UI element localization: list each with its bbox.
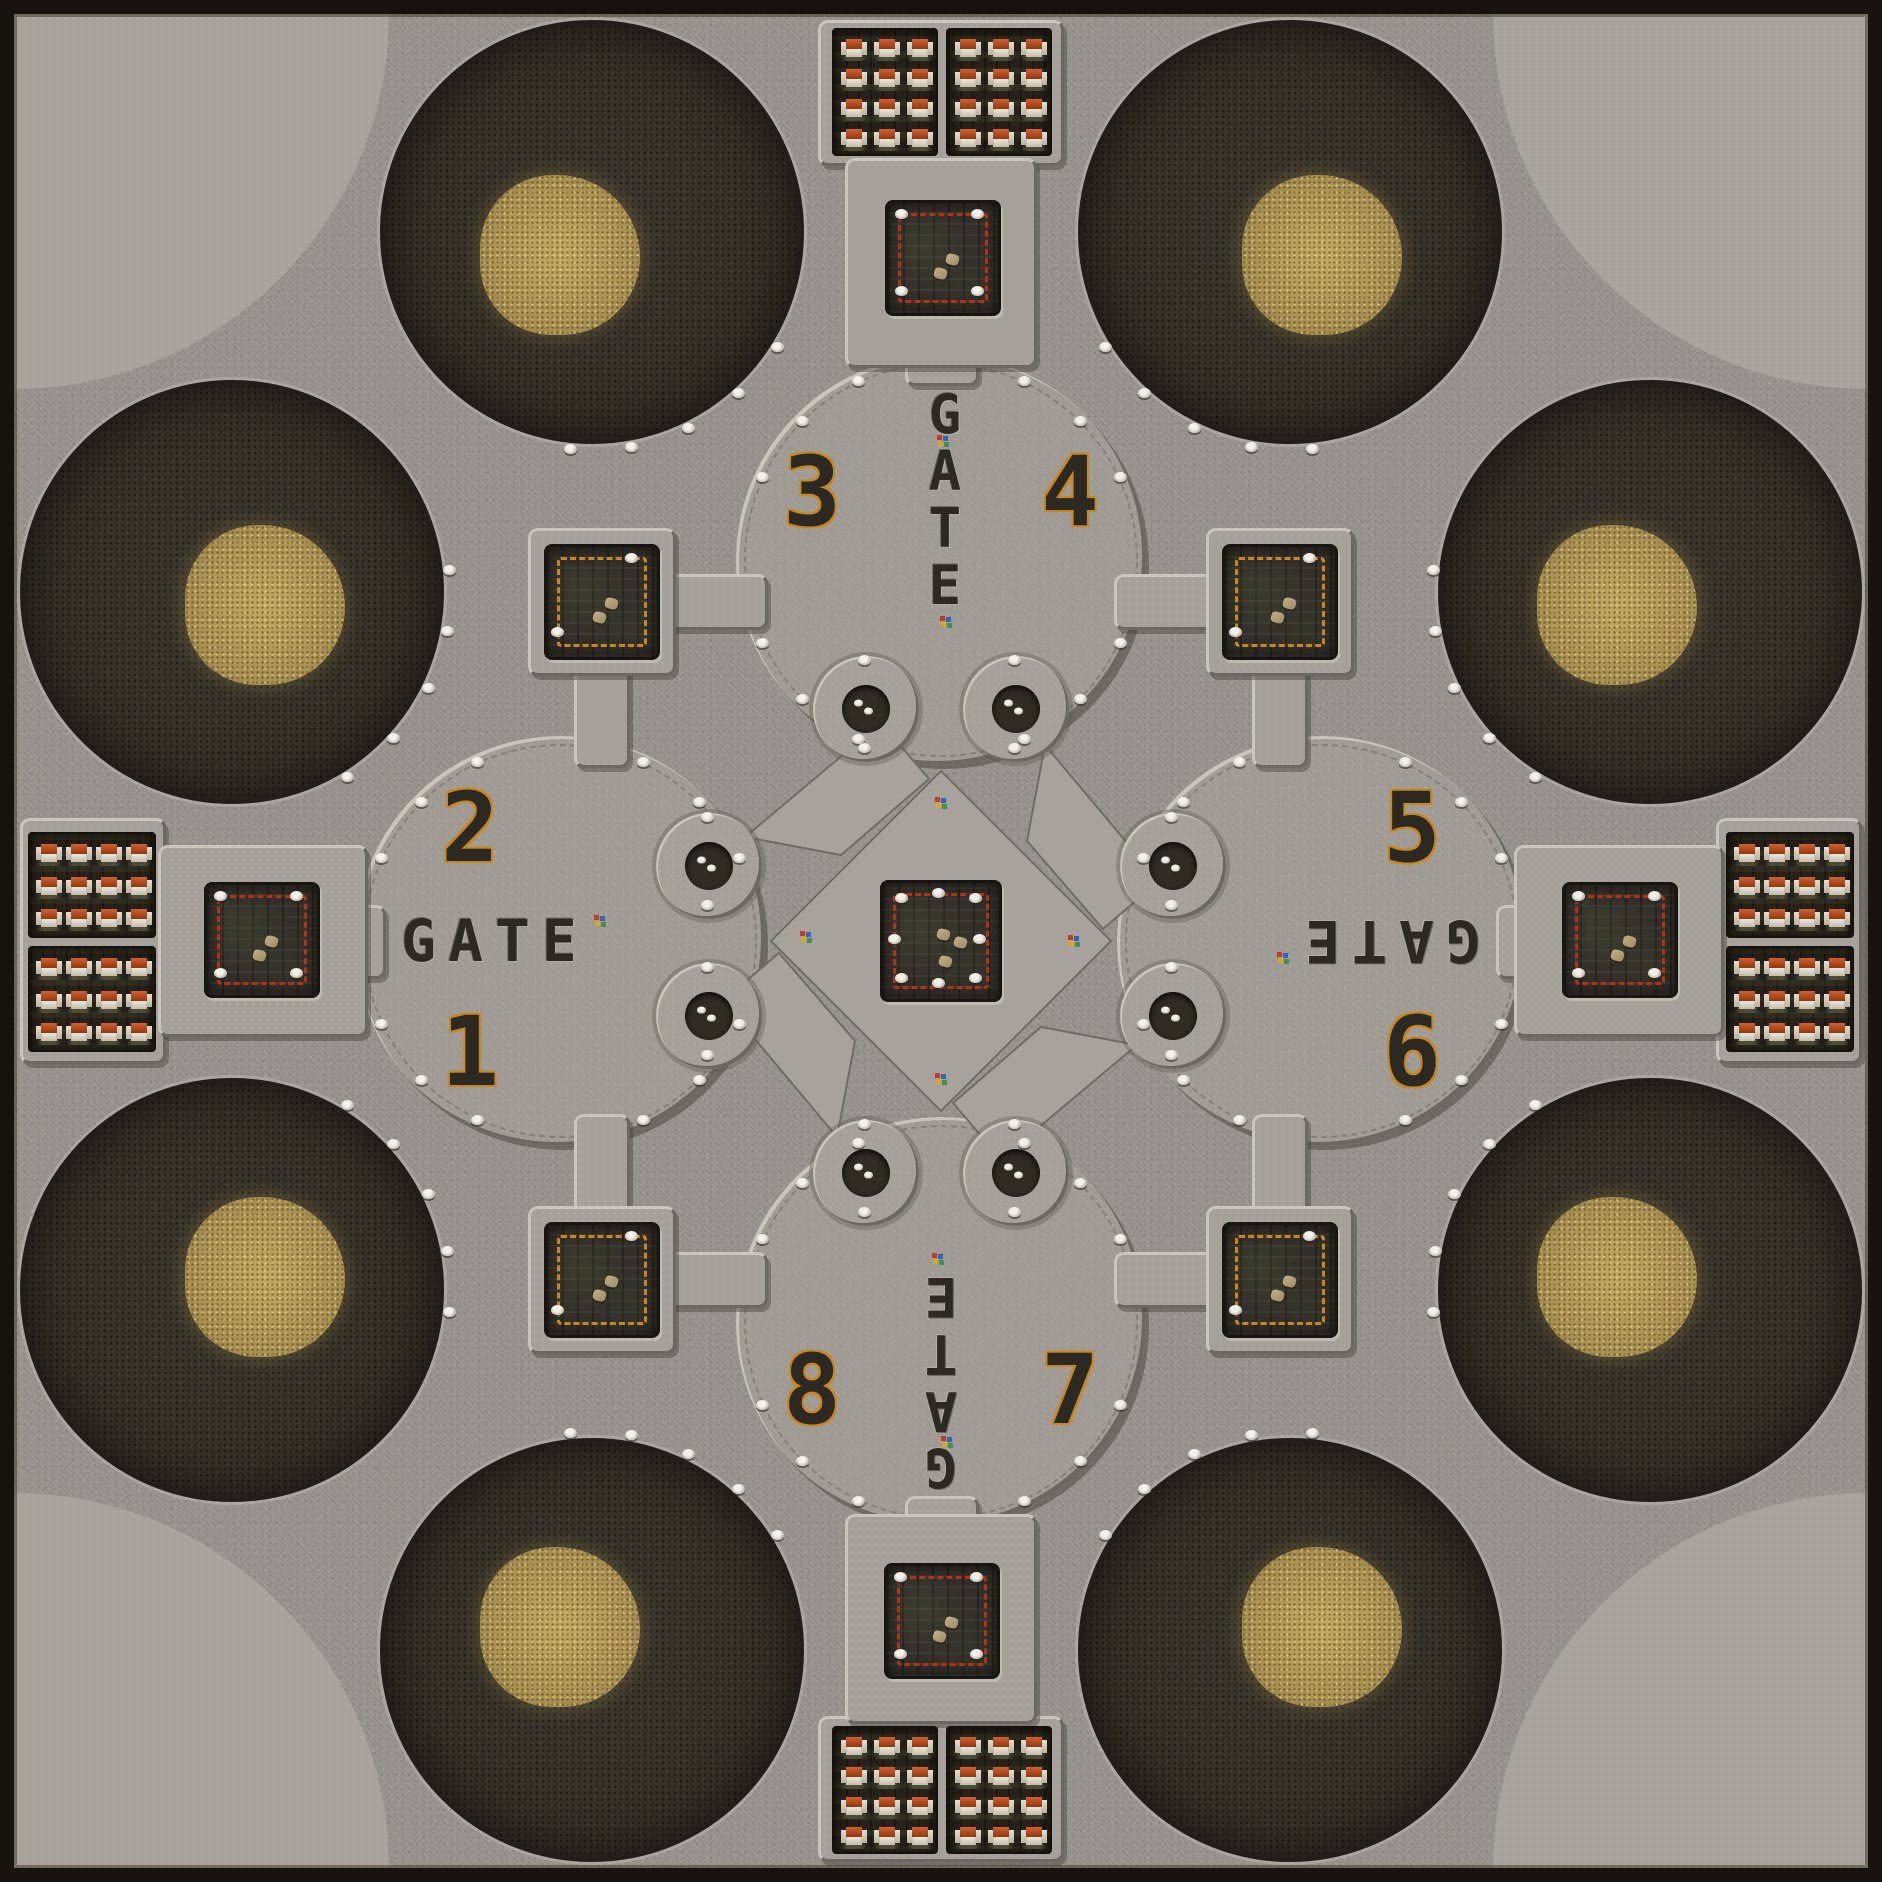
skull-icon [1008,743,1021,753]
gold-dashed-border [557,557,647,647]
castle-icon[interactable] [126,908,152,931]
gate-letter: T [929,500,962,557]
castle-icon[interactable] [1794,990,1820,1013]
skull-icon [1161,857,1170,864]
gate-letter: E [925,1268,958,1325]
castle-pen [832,28,938,156]
castle-icon[interactable] [96,843,122,866]
castle-icon[interactable] [874,128,900,151]
skull-icon [443,1307,456,1317]
skull-icon [1483,1139,1496,1149]
skull-icon [852,1496,865,1506]
castle-icon[interactable] [841,1796,867,1819]
tower-hole [992,685,1040,733]
skull-icon [564,444,577,454]
castle-icon[interactable] [841,98,867,121]
skull-icon [441,626,454,636]
skull-icon [1004,1164,1013,1171]
square-center[interactable] [880,880,1002,1002]
skull-icon [341,1100,354,1110]
skull-icon [852,376,865,386]
skull-icon [1165,962,1178,972]
castle-icon[interactable] [1764,1022,1790,1045]
castle-icon[interactable] [874,1826,900,1849]
skull-icon [932,888,945,898]
skull-icon [854,700,863,707]
castle-icon[interactable] [907,128,933,151]
castle-icon[interactable] [36,957,62,980]
castle-icon[interactable] [1794,1022,1820,1045]
skull-icon [1165,900,1178,910]
gate-letter: E [929,557,962,614]
castle-icon[interactable] [988,1796,1014,1819]
castle-icon[interactable] [36,908,62,931]
skull-icon [1429,626,1442,636]
castle-icon[interactable] [126,957,152,980]
castle-icon[interactable] [126,843,152,866]
castle-icon[interactable] [841,1766,867,1789]
gate-number-3: 3 [783,436,841,548]
gold-deposit [480,1547,640,1707]
skull-icon [1138,388,1151,398]
skull-icon [895,209,908,219]
castle-icon[interactable] [955,128,981,151]
skull-icon [697,1007,706,1014]
tower-hole [685,992,733,1040]
skull-icon [693,797,706,807]
gold-deposit [185,525,345,685]
castle-icon[interactable] [955,1766,981,1789]
skull-icon [214,891,227,901]
skull-icon [1165,812,1178,822]
castle-icon[interactable] [1734,990,1760,1013]
castle-icon[interactable] [66,990,92,1013]
skull-icon [1233,757,1246,767]
castle-icon[interactable] [1734,1022,1760,1045]
castle-icon[interactable] [66,876,92,899]
gate-number-6: 6 [1383,996,1441,1108]
skull-icon [1177,1075,1190,1085]
skull-icon [733,853,746,863]
skull-icon [1233,1115,1246,1125]
castle-icon[interactable] [1824,908,1850,931]
skull-icon [733,1019,746,1029]
skull-icon [932,978,945,988]
stage: GATEGATEGATEGATE12345678 [0,0,1882,1882]
castle-icon[interactable] [955,1796,981,1819]
skull-icon [375,853,388,863]
unit-sprite[interactable] [1068,935,1080,947]
skull-icon [625,442,638,452]
gold-deposit [1242,175,1402,335]
castle-icon[interactable] [874,38,900,61]
castle-icon[interactable] [96,908,122,931]
tower-hole [992,1149,1040,1197]
castle-icon[interactable] [1734,908,1760,931]
castle-icon[interactable] [66,843,92,866]
unit-sprite[interactable] [935,1073,947,1085]
castle-icon[interactable] [66,1022,92,1045]
castle-icon[interactable] [988,128,1014,151]
tower-hole [842,685,890,733]
skull-icon [701,812,714,822]
castle-icon[interactable] [1021,1766,1047,1789]
skull-icon [1177,797,1190,807]
castle-icon[interactable] [988,1736,1014,1759]
skull-icon [422,683,435,693]
unit-sprite[interactable] [940,616,952,628]
gate-label-west: GATE [401,907,589,975]
castle-icon[interactable] [36,990,62,1013]
castle-icon[interactable] [955,98,981,121]
skull-icon [1483,733,1496,743]
castle-icon[interactable] [1021,1826,1047,1849]
skull-icon [1014,1172,1023,1179]
skull-icon [1529,1100,1542,1110]
castle-icon[interactable] [907,38,933,61]
gate-label-south: GATE [925,1268,958,1496]
skull-icon [969,973,982,983]
castle-icon[interactable] [988,1826,1014,1849]
skull-icon [1572,891,1585,901]
castle-icon[interactable] [874,1766,900,1789]
castle-icon[interactable] [907,68,933,91]
castle-pen [946,1726,1052,1854]
castle-icon[interactable] [1794,843,1820,866]
castle-icon[interactable] [1824,843,1850,866]
square-gold-tl[interactable] [544,544,660,660]
skull-icon [1648,968,1661,978]
castle-icon[interactable] [1794,908,1820,931]
corridor [660,574,768,630]
skull-icon [852,1138,865,1148]
gate-number-4: 4 [1041,436,1099,548]
castle-pen [946,28,1052,156]
castle-icon[interactable] [874,1736,900,1759]
castle-pen [1726,946,1854,1052]
castle-icon[interactable] [66,908,92,931]
corridor [1252,660,1308,768]
skull-icon [341,772,354,782]
skull-icon [756,1234,769,1244]
castle-icon[interactable] [126,1022,152,1045]
skull-icon [1018,1496,1031,1506]
gold-deposit [1537,525,1697,685]
skull-icon [895,973,908,983]
gold-deposit [480,175,640,335]
corridor [574,660,630,768]
castle-icon[interactable] [96,876,122,899]
skull-icon [796,1178,809,1188]
castle-icon[interactable] [907,98,933,121]
skull-icon [854,1164,863,1171]
corridor [660,1252,768,1308]
corner-clearing [1493,1493,1868,1868]
gate-letter: A [925,1382,958,1439]
castle-icon[interactable] [1021,68,1047,91]
castle-icon[interactable] [36,843,62,866]
unit-sprite[interactable] [594,915,606,927]
castle-icon[interactable] [1824,990,1850,1013]
castle-icon[interactable] [907,1796,933,1819]
skull-icon [1188,423,1201,433]
castle-icon[interactable] [1824,1022,1850,1045]
castle-icon[interactable] [1764,990,1790,1013]
castle-icon[interactable] [1021,1736,1047,1759]
skull-icon [1014,708,1023,715]
castle-icon[interactable] [1734,876,1760,899]
castle-icon[interactable] [36,1022,62,1045]
gold-deposit [1242,1547,1402,1707]
castle-icon[interactable] [1764,908,1790,931]
skull-icon [864,1172,873,1179]
gate-number-8: 8 [783,1334,841,1446]
castle-icon[interactable] [874,98,900,121]
castle-icon[interactable] [126,990,152,1013]
castle-icon[interactable] [1021,98,1047,121]
castle-icon[interactable] [1021,1796,1047,1819]
skull-icon [637,1115,650,1125]
skull-icon [707,865,716,872]
skull-icon [682,1449,695,1459]
skull-icon [894,1572,907,1582]
square-gold-bl[interactable] [544,1222,660,1338]
skull-icon [1008,1207,1021,1217]
gate-label-east: GATE [1293,907,1481,975]
castle-icon[interactable] [66,957,92,980]
skull-icon [796,1456,809,1466]
gold-deposit [1537,1197,1697,1357]
skull-icon [1495,1019,1508,1029]
gold-deposit [185,1197,345,1357]
skull-icon [1114,1234,1127,1244]
skull-icon [970,1649,983,1659]
castle-icon[interactable] [1734,843,1760,866]
square-gold-br[interactable] [1222,1222,1338,1338]
castle-icon[interactable] [1021,128,1047,151]
skull-icon [471,1115,484,1125]
square-gate-north[interactable] [885,200,1001,316]
castle-icon[interactable] [1734,957,1760,980]
castle-icon[interactable] [988,98,1014,121]
skull-icon [387,1139,400,1149]
gold-dashed-border [1235,1235,1325,1325]
skull-icon [970,1572,983,1582]
skull-icon [443,565,456,575]
skull-icon [864,708,873,715]
skull-icon [1448,1189,1461,1199]
unit-sprite[interactable] [800,931,812,943]
corner-clearing [14,14,389,389]
tower-hole [685,842,733,890]
gate-label-north: GATE [929,386,962,614]
gold-dashed-border [557,1235,647,1325]
castle-icon[interactable] [841,1736,867,1759]
skull-icon [1245,1430,1258,1440]
castle-icon[interactable] [988,68,1014,91]
castle-pen [1726,832,1854,938]
skull-icon [732,1484,745,1494]
skull-icon [1018,734,1031,744]
square-gate-east[interactable] [1562,882,1678,998]
castle-icon[interactable] [96,957,122,980]
skull-icon [701,962,714,972]
skull-icon [858,1119,871,1129]
skull-icon [1245,442,1258,452]
skull-icon [625,1430,638,1440]
castle-icon[interactable] [907,1766,933,1789]
castle-icon[interactable] [955,38,981,61]
skull-icon [707,1015,716,1022]
gate-number-7: 7 [1041,1334,1099,1446]
skull-icon [1137,853,1150,863]
skull-icon [895,286,908,296]
skull-icon [1138,1484,1151,1494]
castle-icon[interactable] [1794,876,1820,899]
castle-icon[interactable] [1764,876,1790,899]
skull-icon [1455,797,1468,807]
skull-icon [1171,865,1180,872]
skull-icon [1306,1428,1319,1438]
gate-number-1: 1 [441,996,499,1108]
skull-icon [1572,968,1585,978]
castle-icon[interactable] [907,1826,933,1849]
gate-number-2: 2 [441,772,499,884]
skull-icon [1074,1178,1087,1188]
game-map[interactable]: GATEGATEGATEGATE12345678 [0,0,1882,1882]
castle-icon[interactable] [36,876,62,899]
skull-icon [564,1428,577,1438]
castle-icon[interactable] [1824,957,1850,980]
skull-icon [1448,683,1461,693]
skull-icon [422,1189,435,1199]
castle-pen [832,1726,938,1854]
skull-icon [1165,1050,1178,1060]
castle-icon[interactable] [1021,38,1047,61]
skull-icon [969,893,982,903]
skull-icon [858,743,871,753]
skull-icon [415,1075,428,1085]
castle-icon[interactable] [841,128,867,151]
castle-pen [28,946,156,1052]
skull-icon [1004,700,1013,707]
skull-icon [471,757,484,767]
skull-icon [796,694,809,704]
gate-letter: T [925,1325,958,1382]
skull-icon [290,891,303,901]
skull-icon [1114,472,1127,482]
castle-icon[interactable] [955,1736,981,1759]
castle-icon[interactable] [1794,957,1820,980]
skull-icon [894,1649,907,1659]
skull-icon [214,968,227,978]
castle-icon[interactable] [955,1826,981,1849]
castle-icon[interactable] [1824,876,1850,899]
skull-icon [796,416,809,426]
castle-icon[interactable] [988,38,1014,61]
skull-icon [1399,1115,1412,1125]
skull-icon [1495,853,1508,863]
unit-sprite[interactable] [932,1253,944,1265]
castle-pen [28,832,156,938]
castle-icon[interactable] [955,68,981,91]
square-gate-south[interactable] [884,1563,1000,1679]
castle-icon[interactable] [96,990,122,1013]
skull-icon [1099,342,1112,352]
castle-icon[interactable] [874,68,900,91]
gold-dashed-border [1235,557,1325,647]
skull-icon [1306,444,1319,454]
skull-icon [971,286,984,296]
corner-clearing [14,1493,389,1868]
unit-sprite[interactable] [937,435,949,447]
skull-icon [1171,1015,1180,1022]
tower-hole [1149,842,1197,890]
square-gold-tr[interactable] [1222,544,1338,660]
skull-icon [732,388,745,398]
skull-icon [756,472,769,482]
skull-icon [1427,1307,1440,1317]
castle-icon[interactable] [1764,957,1790,980]
skull-icon [858,1207,871,1217]
castle-icon[interactable] [841,68,867,91]
unit-sprite[interactable] [935,797,947,809]
skull-icon [771,1530,784,1540]
skull-icon [1529,772,1542,782]
skull-icon [701,1050,714,1060]
gate-number-5: 5 [1383,772,1441,884]
skull-icon [387,733,400,743]
skull-icon [1074,416,1087,426]
unit-sprite[interactable] [1277,952,1289,964]
skull-icon [697,857,706,864]
skull-icon [1648,891,1661,901]
skull-icon [701,900,714,910]
skull-icon [1099,1530,1112,1540]
skull-icon [1008,1119,1021,1129]
unit-sprite[interactable] [941,1436,953,1448]
tower-hole [1149,992,1197,1040]
skull-icon [895,893,908,903]
skull-icon [441,1246,454,1256]
castle-icon[interactable] [1764,843,1790,866]
skull-icon [971,209,984,219]
castle-icon[interactable] [907,1736,933,1759]
skull-icon [682,423,695,433]
castle-icon[interactable] [841,1826,867,1849]
corner-clearing [1493,14,1868,389]
skull-icon [858,655,871,665]
skull-icon [1427,565,1440,575]
gate-letter: A [929,443,962,500]
tower-hole [842,1149,890,1197]
skull-icon [1161,1007,1170,1014]
skull-icon [888,934,901,944]
castle-icon[interactable] [841,38,867,61]
skull-icon [1008,655,1021,665]
castle-icon[interactable] [96,1022,122,1045]
skull-icon [1188,1449,1201,1459]
castle-icon[interactable] [126,876,152,899]
skull-icon [415,797,428,807]
skull-icon [1114,1400,1127,1410]
skull-icon [1114,638,1127,648]
square-gate-west[interactable] [204,882,320,998]
castle-icon[interactable] [874,1796,900,1819]
skull-icon [771,342,784,352]
skull-icon [290,968,303,978]
castle-icon[interactable] [988,1766,1014,1789]
